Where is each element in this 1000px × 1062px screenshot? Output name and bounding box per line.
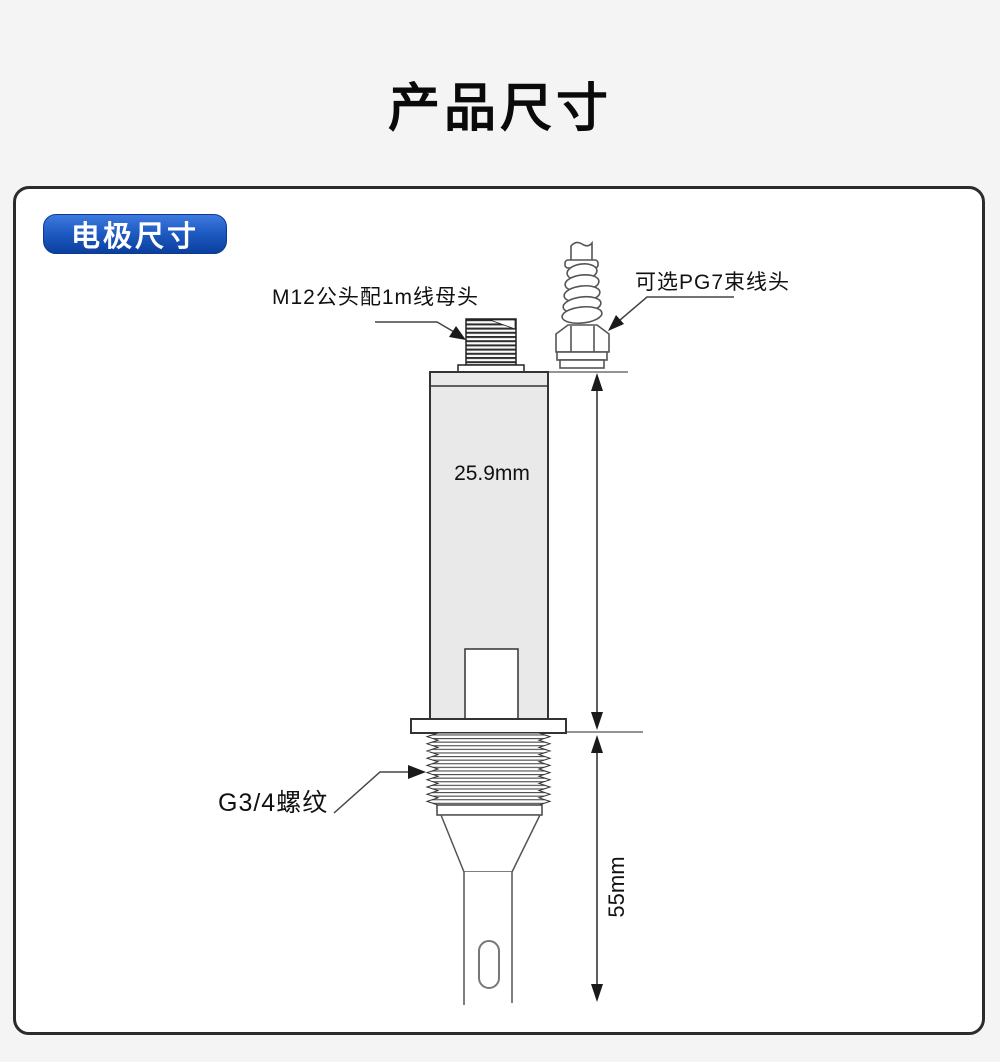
m12-leader-line xyxy=(375,322,461,336)
pg7-nut-drawing xyxy=(556,325,609,352)
g34-thread-drawing xyxy=(427,733,550,805)
cone-drawing xyxy=(441,815,540,872)
pg7-leader-line xyxy=(613,297,734,326)
arrow-icon xyxy=(608,315,624,331)
pg7-gland-drawing xyxy=(556,242,609,368)
arrow-icon xyxy=(408,765,426,779)
arrow-down-icon xyxy=(591,712,603,730)
arrow-down-icon xyxy=(591,984,603,1002)
sensor-drawing xyxy=(411,319,566,1005)
probe-slot-drawing xyxy=(479,941,499,988)
thread-neck-drawing xyxy=(437,805,542,815)
arrow-icon xyxy=(449,326,466,340)
pg7-base-lower xyxy=(560,360,604,368)
probe-length-value: 55mm xyxy=(604,856,629,917)
m12-connector-label: M12公头配1m线母头 xyxy=(272,286,479,309)
electrode-diagram: M12公头配1m线母头 可选PG7束线头 25.9mm G3/4螺纹 55mm xyxy=(0,0,1000,1062)
body-diameter-value: 25.9mm xyxy=(454,462,530,485)
flange-drawing xyxy=(411,719,566,733)
thread-spec-label: G3/4螺纹 xyxy=(218,789,328,817)
pg7-base-upper xyxy=(557,352,607,360)
body-notch-drawing xyxy=(465,649,518,719)
g34-leader-line xyxy=(334,772,410,813)
pg7-gland-label: 可选PG7束线头 xyxy=(635,271,790,294)
arrow-up-icon xyxy=(591,373,603,391)
arrow-up-icon xyxy=(591,735,603,753)
